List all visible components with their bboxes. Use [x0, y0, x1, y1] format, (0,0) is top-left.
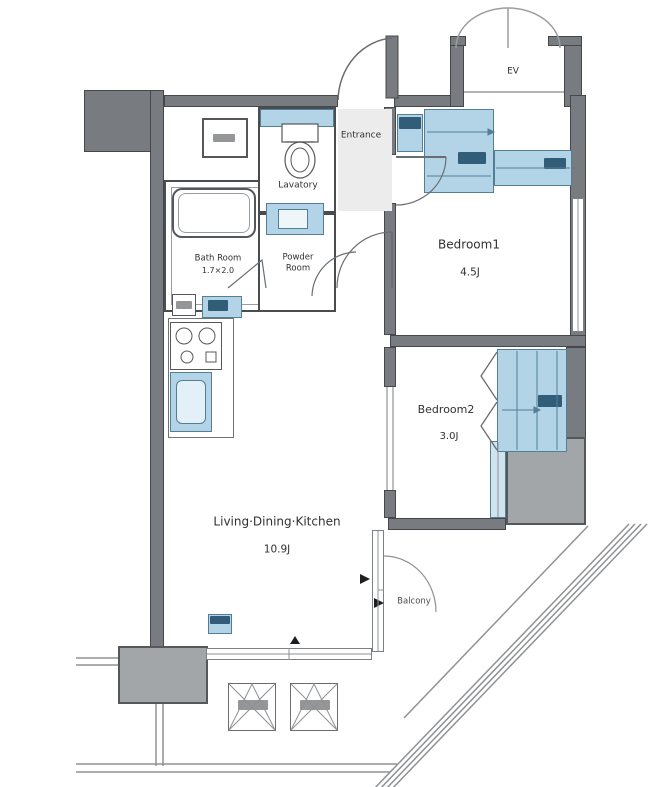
front-door — [338, 36, 398, 100]
bath-size-label: 1.7×2.0 — [202, 266, 234, 276]
balcony-railing-lines — [371, 524, 647, 787]
bedroom1-area: 4.5J — [460, 266, 480, 279]
bedroom1-label: Bedroom1 — [438, 238, 500, 253]
elevator-label: EV — [507, 66, 519, 77]
floorplan-linework — [0, 0, 649, 787]
floor-plan: Lavatory Entrance EV Bedroom1 4.5J Bedro… — [0, 0, 649, 787]
wic-hanger-pipe-icon — [427, 129, 570, 176]
bath-label: Bath Room — [195, 254, 242, 265]
stove-burners-icon — [176, 328, 216, 363]
entrance-label: Entrance — [341, 130, 381, 141]
bedroom2-closet-lines — [502, 351, 557, 450]
equipment-hatch-lines — [229, 684, 337, 730]
ldk-door — [337, 232, 392, 288]
bedroom1-door — [396, 157, 446, 205]
toilet-icon — [282, 124, 318, 178]
ldk-area: 10.9J — [264, 543, 290, 556]
bedroom2-area: 3.0J — [440, 431, 459, 444]
powder-room-label: Powder Room — [275, 252, 321, 273]
ldk-label: Living·Dining·Kitchen — [213, 515, 340, 530]
lavatory-label: Lavatory — [278, 180, 317, 191]
balcony-label: Balcony — [397, 597, 431, 608]
bedroom2-closet-folding-doors — [481, 352, 497, 450]
sliding-partition — [387, 387, 393, 490]
bedroom2-label: Bedroom2 — [418, 403, 475, 417]
elevator-doors-icon — [456, 8, 564, 92]
